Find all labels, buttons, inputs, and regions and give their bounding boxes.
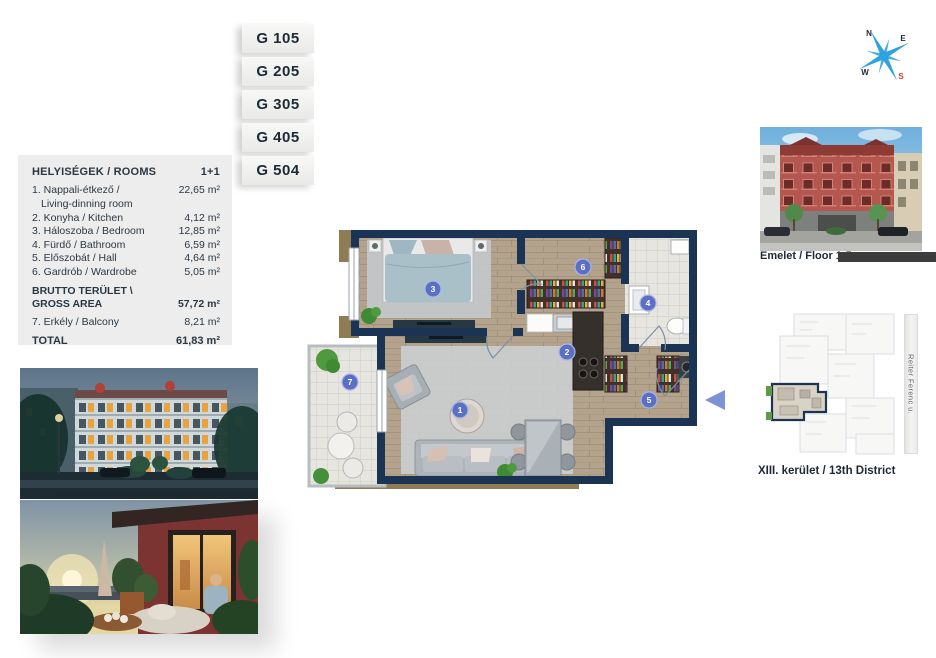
svg-text:2: 2: [565, 347, 570, 357]
elevation-photo: [760, 127, 922, 251]
room-badge-4: 4: [640, 295, 656, 311]
unit-tab-g504[interactable]: G 504: [242, 156, 314, 185]
room-row-line2: Living-dinning room: [41, 198, 220, 210]
compass-icon: N E W S: [853, 24, 915, 84]
unit-type-badge: 1+1: [201, 166, 220, 178]
room-row: 5. Előszobát / Hall 4,64 m²: [32, 252, 220, 266]
room-row: 3. Háloszoba / Bedroom 12,85 m²: [32, 225, 220, 239]
site-plan: [760, 310, 902, 458]
room-row: 2. Konyha / Kitchen 4,12 m²: [32, 212, 220, 226]
compass-east-label: E: [900, 34, 906, 43]
wardrobe-shelf-low: [605, 356, 627, 392]
rooms-title: HELYISÉGEK / ROOMS: [32, 166, 156, 178]
compass-south-label: S: [898, 72, 904, 81]
compass-west-label: W: [861, 68, 869, 77]
room-badge-3: 3: [425, 281, 441, 297]
room-row: 4. Fürdő / Bathroom 6,59 m²: [32, 239, 220, 253]
svg-text:7: 7: [348, 377, 353, 387]
room-row: 6. Gardrób / Wardrobe 5,05 m²: [32, 266, 220, 280]
balcony: [309, 346, 385, 486]
room-badge-2: 2: [559, 344, 575, 360]
unit-tab-g405[interactable]: G 405: [242, 123, 314, 152]
svg-text:3: 3: [431, 284, 436, 294]
svg-text:1: 1: [458, 405, 463, 415]
room-badge-7: 7: [342, 374, 358, 390]
entrance-arrow-icon: [705, 390, 725, 410]
svg-text:4: 4: [646, 298, 651, 308]
svg-text:5: 5: [647, 395, 652, 405]
rooms-panel: HELYISÉGEK / ROOMS 1+1 1. Nappali-étkező…: [18, 155, 232, 345]
floor-plan: 1 2 3 4 5 6 7: [305, 228, 735, 492]
svg-text:6: 6: [581, 262, 586, 272]
room-badge-6: 6: [575, 259, 591, 275]
hall-shelf: [657, 356, 679, 392]
siteplan-caption: XIII. kerület / 13th District: [758, 465, 895, 477]
balcony-row: 7. Erkély / Balcony 8,21 m²: [32, 315, 220, 329]
page: G 105 G 205 G 305 G 405 G 504 HELYISÉGEK…: [0, 0, 936, 658]
terrace-photo: [20, 500, 258, 634]
room-badge-5: 5: [641, 392, 657, 408]
unit-tab-g205[interactable]: G 205: [242, 57, 314, 86]
street-label: Reiter Ferenc u.: [904, 314, 918, 454]
room-row: 1. Nappali-étkező / 22,65 m²: [32, 184, 220, 198]
unit-tab-g305[interactable]: G 305: [242, 90, 314, 119]
gross-area-row: BRUTTO TERÜLET \ GROSS AREA 57,72 m²: [32, 285, 220, 310]
unit-tab-g105[interactable]: G 105: [242, 24, 314, 53]
caption-bar: [838, 252, 936, 262]
room-badge-1: 1: [452, 402, 468, 418]
compass-north-label: N: [866, 29, 872, 38]
building-photo: [20, 368, 258, 499]
total-row: TOTAL 61,83 m²: [32, 335, 220, 347]
unit-tab-list: G 105 G 205 G 305 G 405 G 504: [242, 24, 316, 189]
